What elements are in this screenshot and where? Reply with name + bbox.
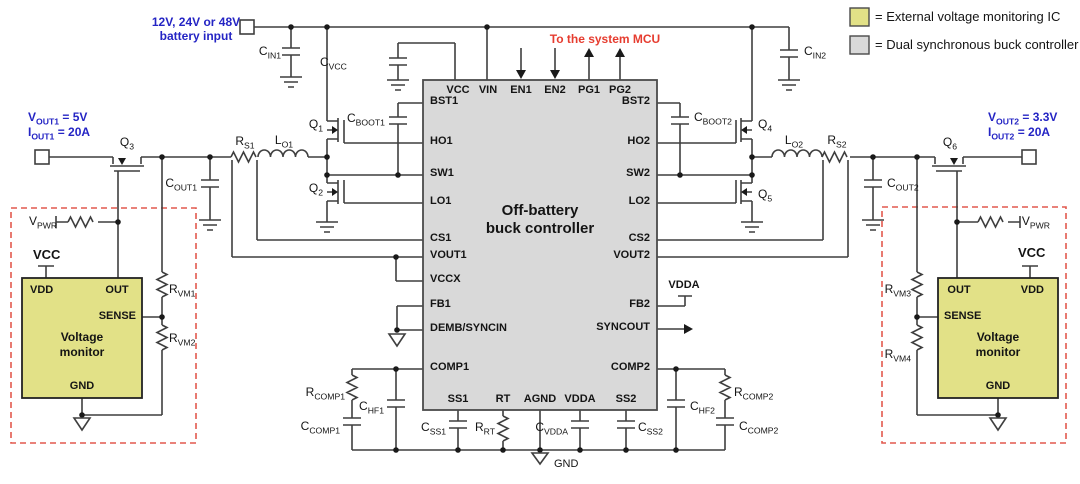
q1-mosfet-arrow-icon [332, 126, 338, 134]
pin-vin: VIN [479, 85, 497, 97]
label-rvm2: RVM2 [169, 332, 195, 345]
label-ccomp2: CCOMP2 [739, 420, 778, 433]
label-rcomp2: RCOMP2 [734, 386, 773, 399]
monitor-right-pin-vdd: VDD [1021, 285, 1044, 297]
monitor-right-pin-sense: SENSE [944, 311, 981, 323]
label-q5: Q5 [758, 188, 772, 201]
pin-rt: RT [496, 394, 511, 406]
pin-demb-syncin: DEMB/SYNCIN [430, 323, 507, 335]
pin-pg1: PG1 [578, 85, 600, 97]
iout2-spec-label: IOUT2 = 20A [988, 126, 1050, 139]
legend-swatch-monitor [850, 8, 869, 26]
pin-bst2: BST2 [622, 96, 650, 108]
agnd-ground-icon [532, 453, 548, 464]
label-css1: CSS1 [421, 421, 446, 434]
label-q2: Q2 [309, 182, 323, 195]
label-cin1: CIN1 [259, 45, 281, 58]
pin-syncout: SYNCOUT [596, 322, 650, 334]
monitor-left-pin-gnd: GND [70, 381, 94, 393]
label-rs2: RS2 [827, 134, 846, 147]
vout1-spec-label: VOUT1 = 5V [28, 111, 87, 124]
label-rvm4: RVM4 [885, 348, 911, 361]
pin-sw2: SW2 [626, 168, 650, 180]
left-monitor-ground-icon [74, 418, 90, 430]
label-cvcc: CVCC [320, 56, 347, 69]
controller-title: Off-battery [502, 203, 579, 219]
monitor-left-title: Voltage [61, 331, 103, 344]
monitor-right-title2: monitor [976, 346, 1021, 359]
monitor-right-title: Voltage [977, 331, 1019, 344]
schematic-drawing [0, 0, 1080, 484]
pin-ss2: SS2 [616, 394, 637, 406]
monitor-left-title2: monitor [60, 346, 105, 359]
label-q6: Q6 [943, 136, 957, 149]
schematic-canvas: 12V, 24V or 48V battery input VOUT1 = 5V… [0, 0, 1080, 484]
label-chf1: CHF1 [359, 400, 384, 413]
pin-cs2: CS2 [629, 233, 650, 245]
pin-vdda: VDDA [564, 394, 595, 406]
vout2-terminal [1022, 150, 1036, 164]
q3-mosfet-arrow-icon [118, 158, 126, 165]
pin-bst1: BST1 [430, 96, 458, 108]
en2-arrow-icon [550, 70, 560, 79]
vout2-spec-label: VOUT2 = 3.3V [988, 111, 1057, 124]
label-cout1: COUT1 [165, 177, 197, 190]
vout1-terminal [35, 150, 49, 164]
label-lo2: LO2 [785, 134, 803, 147]
pin-vout1: VOUT1 [430, 250, 467, 262]
iout1-spec-label: IOUT1 = 20A [28, 126, 90, 139]
label-rcomp1: RCOMP1 [306, 386, 345, 399]
label-chf2: CHF2 [690, 400, 715, 413]
pg2-arrow-icon [615, 48, 625, 57]
battery-input-label: 12V, 24V or 48V [152, 16, 240, 29]
pin-fb1: FB1 [430, 299, 451, 311]
label-vcc-left: VCC [33, 248, 60, 262]
label-cout2: COUT2 [887, 177, 919, 190]
pin-fb2: FB2 [629, 299, 650, 311]
battery-input-label2: battery input [160, 30, 233, 43]
right-monitor-ground-icon [990, 418, 1006, 430]
pin-vccx: VCCX [430, 274, 461, 286]
pin-cs1: CS1 [430, 233, 451, 245]
label-css2: CSS2 [638, 421, 663, 434]
monitor-left-pin-vdd: VDD [30, 285, 53, 297]
label-gnd: GND [554, 459, 578, 471]
label-vdda-rail: VDDA [668, 280, 699, 292]
label-q3: Q3 [120, 136, 134, 149]
syncout-arrow-icon [684, 324, 693, 334]
pin-sw1: SW1 [430, 168, 454, 180]
pin-comp2: COMP2 [611, 362, 650, 374]
pin-agnd: AGND [524, 394, 556, 406]
pin-comp1: COMP1 [430, 362, 469, 374]
label-cvdda: CVDDA [535, 421, 568, 434]
pin-lo2: LO2 [629, 196, 650, 208]
pin-ss1: SS1 [448, 394, 469, 406]
label-q4: Q4 [758, 118, 772, 131]
pin-en2: EN2 [544, 85, 565, 97]
label-vpwr-left: VPWR [29, 215, 57, 228]
legend-swatch-controller [850, 36, 869, 54]
label-rs1: RS1 [235, 135, 254, 148]
label-cboot2: CBOOT2 [694, 111, 732, 124]
label-rvm1: RVM1 [169, 283, 195, 296]
label-ccomp1: CCOMP1 [301, 420, 340, 433]
label-cboot1: CBOOT1 [347, 112, 385, 125]
label-cin2: CIN2 [804, 45, 826, 58]
label-rrt: RRT [475, 421, 495, 434]
pin-ho1: HO1 [430, 136, 453, 148]
label-vpwr-right: VPWR [1022, 215, 1050, 228]
legend-monitor-label: = External voltage monitoring IC [875, 10, 1060, 24]
to-mcu-label: To the system MCU [550, 33, 660, 46]
pin-en1: EN1 [510, 85, 531, 97]
fb1-ground-icon [389, 334, 405, 346]
monitor-left-pin-out: OUT [105, 285, 128, 297]
pin-vout2: VOUT2 [613, 250, 650, 262]
q5-mosfet-arrow-icon [741, 188, 747, 196]
pin-lo1: LO1 [430, 196, 451, 208]
label-q1: Q1 [309, 118, 323, 131]
monitor-right-pin-gnd: GND [986, 381, 1010, 393]
controller-title2: buck controller [486, 221, 594, 237]
monitor-right-pin-out: OUT [947, 285, 970, 297]
pg1-arrow-icon [584, 48, 594, 57]
pin-ho2: HO2 [627, 136, 650, 148]
label-vcc-right: VCC [1018, 246, 1045, 260]
battery-input-terminal [240, 20, 254, 34]
en1-arrow-icon [516, 70, 526, 79]
q6-mosfet-arrow-icon [950, 158, 958, 165]
label-lo1: LO1 [275, 134, 293, 147]
q2-mosfet-arrow-icon [332, 188, 338, 196]
q4-mosfet-arrow-icon [741, 126, 747, 134]
legend-controller-label: = Dual synchronous buck controller [875, 38, 1078, 52]
monitor-left-pin-sense: SENSE [99, 311, 136, 323]
label-rvm3: RVM3 [885, 283, 911, 296]
